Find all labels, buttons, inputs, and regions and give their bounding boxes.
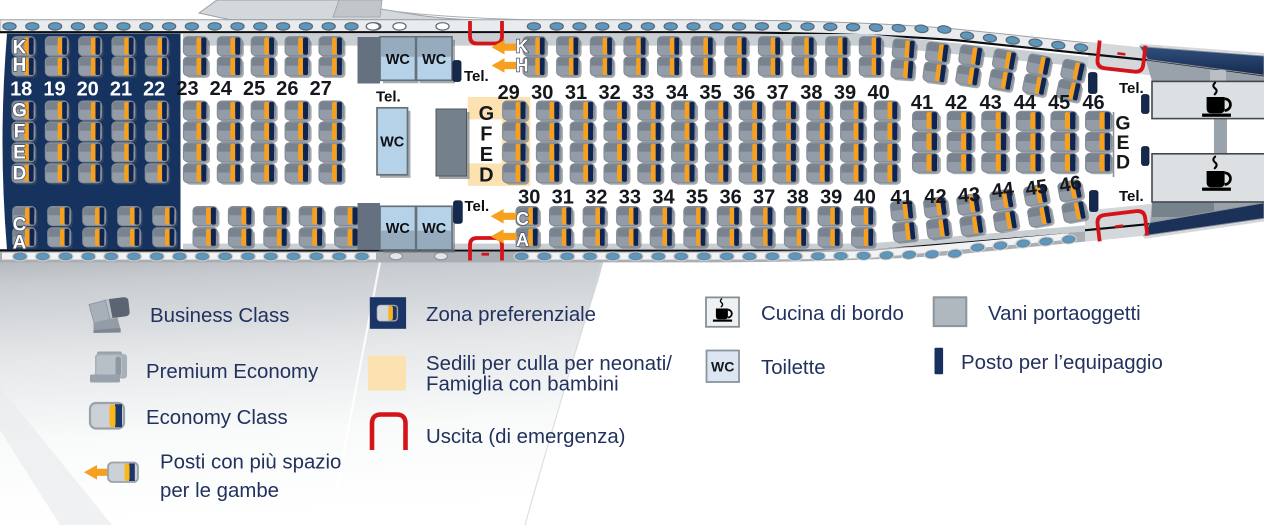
- svg-text:43: 43: [979, 92, 1001, 114]
- svg-text:30: 30: [518, 187, 540, 209]
- svg-text:36: 36: [733, 82, 755, 104]
- svg-text:Business Class: Business Class: [150, 305, 289, 327]
- svg-text:Sedili per culla per neonati/: Sedili per culla per neonati/: [426, 353, 672, 375]
- svg-text:WC: WC: [380, 135, 405, 151]
- svg-text:25: 25: [243, 78, 265, 100]
- svg-text:41: 41: [911, 92, 933, 114]
- svg-text:A: A: [516, 230, 529, 250]
- svg-text:D: D: [13, 163, 27, 184]
- svg-text:23: 23: [176, 78, 198, 100]
- svg-text:39: 39: [820, 187, 842, 209]
- svg-text:Tel.: Tel.: [464, 68, 489, 85]
- svg-text:D: D: [1116, 151, 1130, 173]
- svg-text:27: 27: [310, 78, 332, 100]
- svg-text:33: 33: [632, 82, 654, 104]
- svg-text:Zona preferenziale: Zona preferenziale: [426, 304, 596, 326]
- svg-text:Vani portaoggetti: Vani portaoggetti: [988, 303, 1141, 325]
- svg-text:Tel.: Tel.: [1119, 188, 1144, 205]
- svg-text:31: 31: [552, 187, 574, 209]
- svg-text:34: 34: [652, 187, 675, 209]
- svg-text:D: D: [479, 164, 493, 186]
- svg-text:39: 39: [834, 82, 856, 104]
- svg-text:44: 44: [990, 178, 1016, 203]
- svg-text:32: 32: [598, 82, 620, 104]
- svg-text:40: 40: [854, 187, 876, 209]
- svg-text:46: 46: [1082, 92, 1104, 114]
- svg-text:Tel.: Tel.: [376, 89, 401, 106]
- svg-text:F: F: [14, 122, 26, 143]
- svg-text:H: H: [516, 55, 529, 75]
- svg-text:Tel.: Tel.: [465, 198, 490, 215]
- svg-text:K: K: [516, 37, 529, 57]
- svg-text:38: 38: [787, 187, 809, 209]
- svg-text:43: 43: [957, 184, 981, 207]
- svg-text:29: 29: [498, 82, 520, 104]
- svg-text:C: C: [516, 209, 529, 229]
- svg-text:19: 19: [43, 79, 65, 101]
- svg-text:18: 18: [10, 79, 32, 101]
- svg-text:32: 32: [585, 187, 607, 209]
- svg-text:35: 35: [686, 187, 708, 209]
- svg-text:40: 40: [867, 82, 889, 104]
- svg-text:WC: WC: [422, 221, 447, 237]
- svg-text:37: 37: [767, 82, 789, 104]
- svg-text:35: 35: [699, 82, 721, 104]
- svg-text:44: 44: [1014, 92, 1037, 114]
- svg-text:Toilette: Toilette: [761, 357, 826, 379]
- svg-text:38: 38: [800, 82, 822, 104]
- svg-text:31: 31: [565, 82, 587, 104]
- svg-text:30: 30: [531, 82, 553, 104]
- svg-text:WC: WC: [386, 52, 411, 68]
- svg-text:42: 42: [924, 186, 946, 208]
- svg-text:26: 26: [276, 78, 298, 100]
- svg-text:Tel.: Tel.: [1119, 80, 1144, 97]
- svg-text:41: 41: [890, 187, 912, 209]
- svg-text:Premium Economy: Premium Economy: [146, 361, 319, 383]
- svg-text:Cucina di bordo: Cucina di bordo: [761, 303, 904, 325]
- svg-text:G: G: [12, 101, 27, 122]
- svg-text:22: 22: [143, 79, 165, 101]
- svg-text:WC: WC: [422, 52, 447, 68]
- svg-text:34: 34: [666, 82, 689, 104]
- svg-text:WC: WC: [711, 359, 734, 375]
- svg-text:36: 36: [719, 187, 741, 209]
- svg-text:37: 37: [753, 187, 775, 209]
- svg-text:per le gambe: per le gambe: [160, 480, 279, 502]
- svg-text:Posto per l’equipaggio: Posto per l’equipaggio: [961, 352, 1163, 374]
- svg-text:45: 45: [1024, 176, 1049, 201]
- svg-text:Famiglia con bambini: Famiglia con bambini: [426, 374, 619, 396]
- svg-text:WC: WC: [386, 221, 411, 237]
- svg-text:F: F: [480, 123, 492, 145]
- svg-text:46: 46: [1058, 172, 1084, 198]
- svg-text:E: E: [480, 144, 493, 166]
- svg-text:42: 42: [945, 92, 967, 114]
- svg-text:Posti con più spazio: Posti con più spazio: [160, 452, 341, 474]
- svg-text:24: 24: [210, 78, 233, 100]
- svg-text:A: A: [13, 232, 27, 253]
- svg-text:E: E: [13, 142, 26, 163]
- svg-text:45: 45: [1048, 92, 1070, 114]
- svg-text:33: 33: [619, 187, 641, 209]
- svg-text:H: H: [13, 55, 27, 76]
- svg-text:Economy Class: Economy Class: [146, 407, 288, 429]
- svg-text:Uscita (di emergenza): Uscita (di emergenza): [426, 426, 625, 448]
- svg-text:G: G: [479, 103, 495, 125]
- svg-text:20: 20: [77, 79, 99, 101]
- svg-text:21: 21: [110, 79, 132, 101]
